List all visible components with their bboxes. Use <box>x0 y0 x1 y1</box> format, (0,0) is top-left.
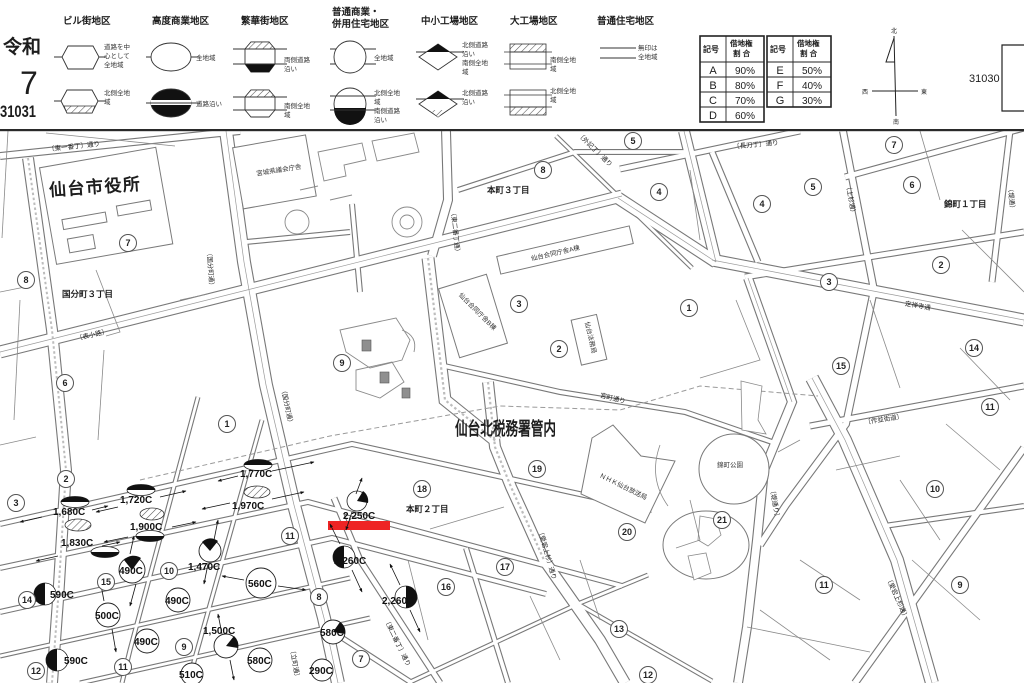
svg-text:沿い: 沿い <box>462 97 475 106</box>
svg-text:7: 7 <box>125 238 130 248</box>
svg-text:域: 域 <box>462 67 469 76</box>
svg-text:8: 8 <box>540 165 545 175</box>
svg-text:錦町公園: 錦町公園 <box>717 460 743 469</box>
svg-text:A: A <box>709 65 717 77</box>
svg-text:D: D <box>709 110 717 122</box>
svg-text:1,830C: 1,830C <box>61 538 93 549</box>
svg-text:域: 域 <box>374 97 381 106</box>
svg-text:北: 北 <box>891 27 897 35</box>
svg-text:記号: 記号 <box>703 44 719 54</box>
svg-text:6: 6 <box>62 378 67 388</box>
svg-text:31030: 31030 <box>969 73 1000 85</box>
svg-text:16: 16 <box>441 582 451 592</box>
svg-text:10: 10 <box>930 484 940 494</box>
svg-text:中小工場地区: 中小工場地区 <box>421 15 479 27</box>
svg-text:1,900C: 1,900C <box>130 522 162 533</box>
svg-text:9: 9 <box>181 642 186 652</box>
svg-text:本町２丁目: 本町２丁目 <box>406 504 449 514</box>
svg-text:2: 2 <box>556 344 561 354</box>
svg-text:2,260C: 2,260C <box>334 556 366 567</box>
svg-text:国分町３丁目: 国分町３丁目 <box>62 289 113 299</box>
svg-text:11: 11 <box>985 402 995 412</box>
svg-text:南: 南 <box>893 118 899 126</box>
svg-text:50%: 50% <box>802 66 822 77</box>
svg-text:域: 域 <box>550 64 557 73</box>
svg-text:1,680C: 1,680C <box>53 507 85 518</box>
svg-text:南側全地: 南側全地 <box>284 101 311 110</box>
svg-text:北側全地: 北側全地 <box>104 88 131 97</box>
svg-text:2: 2 <box>938 260 943 270</box>
svg-text:F: F <box>777 80 784 92</box>
svg-text:500C: 500C <box>95 611 119 622</box>
svg-text:19: 19 <box>532 464 542 474</box>
svg-text:北側道路: 北側道路 <box>462 40 489 49</box>
svg-text:510C: 510C <box>179 670 203 681</box>
svg-text:8: 8 <box>316 592 321 602</box>
svg-text:道路を中: 道路を中 <box>104 42 130 51</box>
svg-text:3: 3 <box>13 498 18 508</box>
svg-text:2,250C: 2,250C <box>343 511 375 522</box>
svg-text:590C: 590C <box>50 590 74 601</box>
svg-text:21: 21 <box>717 515 727 525</box>
svg-text:6: 6 <box>909 180 914 190</box>
svg-text:12: 12 <box>643 670 653 680</box>
svg-text:580C: 580C <box>320 628 344 639</box>
svg-text:1,500C: 1,500C <box>203 626 235 637</box>
svg-text:490C: 490C <box>119 566 143 577</box>
svg-text:G: G <box>776 95 785 107</box>
svg-text:心として: 心として <box>104 52 130 60</box>
svg-text:1,470C: 1,470C <box>188 562 220 573</box>
svg-text:北側全地: 北側全地 <box>374 88 401 97</box>
svg-text:12: 12 <box>31 666 41 676</box>
svg-text:域: 域 <box>284 110 291 119</box>
svg-text:490C: 490C <box>165 596 189 607</box>
svg-text:7: 7 <box>891 140 896 150</box>
svg-text:南側全地: 南側全地 <box>550 55 577 64</box>
svg-text:30%: 30% <box>802 96 822 107</box>
svg-text:西: 西 <box>862 89 868 96</box>
svg-text:ビル街地区: ビル街地区 <box>63 15 111 27</box>
svg-text:令和: 令和 <box>3 35 41 58</box>
svg-text:併用住宅地区: 併用住宅地区 <box>331 18 390 30</box>
svg-text:3: 3 <box>826 277 831 287</box>
svg-text:大工場地区: 大工場地区 <box>510 15 558 27</box>
svg-text:無印は: 無印は <box>638 43 658 52</box>
svg-text:80%: 80% <box>735 81 755 92</box>
svg-text:1,770C: 1,770C <box>240 469 272 480</box>
svg-text:3: 3 <box>516 299 521 309</box>
svg-text:全地域: 全地域 <box>638 52 658 61</box>
svg-text:2,260C: 2,260C <box>382 596 414 607</box>
svg-text:全地域: 全地域 <box>104 60 124 69</box>
svg-text:普通商業・: 普通商業・ <box>332 6 380 18</box>
svg-text:全地域: 全地域 <box>196 53 216 62</box>
svg-text:70%: 70% <box>735 96 755 107</box>
svg-text:11: 11 <box>118 662 128 672</box>
svg-text:沿い: 沿い <box>284 64 297 73</box>
svg-text:290C: 290C <box>309 666 333 677</box>
svg-text:高度商業地区: 高度商業地区 <box>152 15 210 27</box>
svg-text:31031: 31031 <box>0 102 36 121</box>
svg-text:13: 13 <box>614 624 624 634</box>
svg-text:9: 9 <box>339 358 344 368</box>
svg-text:4: 4 <box>759 199 764 209</box>
svg-text:錦町１丁目: 錦町１丁目 <box>943 199 987 209</box>
svg-text:B: B <box>709 80 716 92</box>
svg-text:90%: 90% <box>735 66 755 77</box>
svg-text:C: C <box>709 95 717 107</box>
svg-text:両側道路: 両側道路 <box>284 55 311 64</box>
svg-text:割 合: 割 合 <box>733 48 751 58</box>
svg-text:道路沿い: 道路沿い <box>196 99 222 108</box>
svg-text:490C: 490C <box>134 637 158 648</box>
svg-text:2: 2 <box>63 474 68 484</box>
svg-text:普通住宅地区: 普通住宅地区 <box>597 15 655 27</box>
svg-text:20: 20 <box>622 527 632 537</box>
svg-text:590C: 590C <box>64 656 88 667</box>
svg-text:域: 域 <box>104 97 111 106</box>
svg-text:南側道路: 南側道路 <box>374 106 401 115</box>
svg-text:沿い: 沿い <box>462 49 475 58</box>
svg-text:借地権: 借地権 <box>729 38 753 48</box>
svg-text:40%: 40% <box>802 81 822 92</box>
svg-text:580C: 580C <box>247 656 271 667</box>
svg-text:5: 5 <box>630 136 635 146</box>
svg-text:東: 東 <box>921 88 927 96</box>
svg-text:域: 域 <box>550 95 557 104</box>
svg-text:1,720C: 1,720C <box>120 495 152 506</box>
svg-text:14: 14 <box>22 595 32 605</box>
svg-text:沿い: 沿い <box>374 115 387 124</box>
svg-text:4: 4 <box>656 187 661 197</box>
svg-text:17: 17 <box>500 562 510 572</box>
svg-text:1: 1 <box>686 303 691 313</box>
svg-text:E: E <box>776 65 783 77</box>
svg-text:9: 9 <box>957 580 962 590</box>
svg-text:繁華街地区: 繁華街地区 <box>240 15 289 27</box>
svg-text:14: 14 <box>969 343 979 353</box>
svg-text:15: 15 <box>101 577 111 587</box>
svg-text:11: 11 <box>285 531 295 541</box>
svg-text:15: 15 <box>836 361 846 371</box>
svg-text:11: 11 <box>819 580 829 590</box>
svg-text:1,970C: 1,970C <box>232 501 264 512</box>
svg-text:60%: 60% <box>735 111 755 122</box>
svg-text:南側全地: 南側全地 <box>462 58 489 67</box>
svg-text:5: 5 <box>810 182 815 192</box>
svg-text:本町３丁目: 本町３丁目 <box>487 185 530 195</box>
svg-text:7: 7 <box>20 65 38 101</box>
svg-text:560C: 560C <box>248 579 272 590</box>
svg-text:割 合: 割 合 <box>800 48 818 58</box>
svg-text:北側道路: 北側道路 <box>462 88 489 97</box>
svg-text:借地権: 借地権 <box>796 38 820 48</box>
svg-text:1: 1 <box>224 419 229 429</box>
svg-text:仙台北税務署管内: 仙台北税務署管内 <box>455 418 556 439</box>
svg-text:8: 8 <box>23 275 28 285</box>
svg-text:全地域: 全地域 <box>374 53 394 62</box>
svg-text:10: 10 <box>164 566 174 576</box>
svg-text:北側全地: 北側全地 <box>550 86 577 95</box>
svg-text:7: 7 <box>358 654 363 664</box>
svg-text:18: 18 <box>417 484 427 494</box>
svg-text:記号: 記号 <box>770 44 786 54</box>
